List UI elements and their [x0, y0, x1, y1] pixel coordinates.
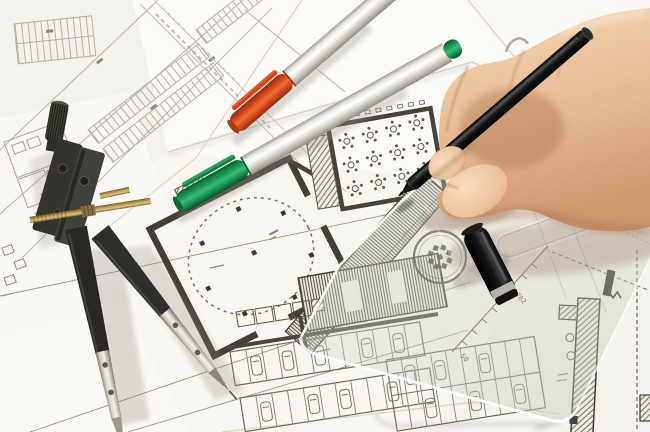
blueprint-photo: Hand drawing on architectural blueprints…: [0, 0, 650, 432]
parking-strip: [14, 16, 96, 64]
photo-stage: Hand drawing on architectural blueprints…: [0, 0, 650, 432]
